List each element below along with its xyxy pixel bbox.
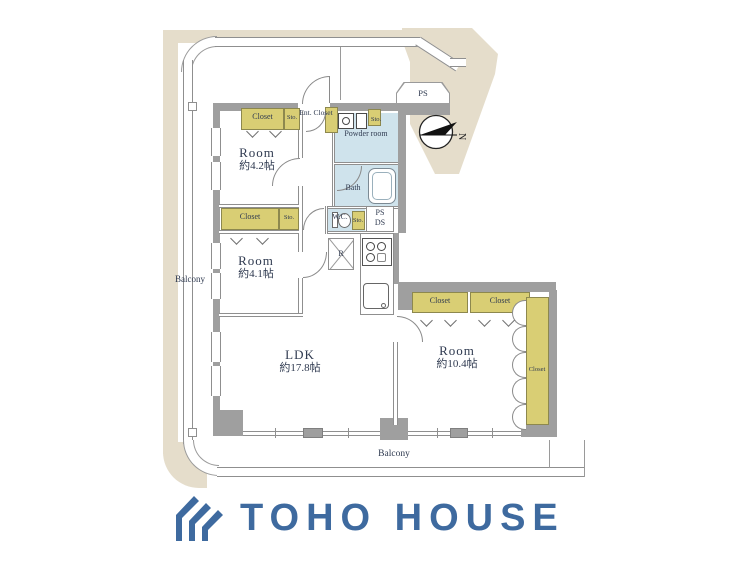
bathtub-inner: [372, 172, 392, 200]
wall-rightwing-east: [549, 290, 557, 437]
corridor-divider: [340, 47, 341, 103]
logo-mark-icon: [172, 493, 226, 543]
floor-plan: PS Closet Sto. Sto. Closet: [0, 0, 750, 563]
window: [211, 366, 221, 396]
burner: [366, 242, 375, 251]
ldk-partition: [393, 342, 398, 425]
ldk-size: 約17.8帖: [252, 362, 348, 374]
railing-top: [215, 37, 420, 47]
door-arc-entrance: [302, 76, 330, 104]
ldk-label: LDK 約17.8帖: [252, 348, 348, 374]
wc-label: W.C.: [328, 213, 352, 221]
wall-corner-bl: [213, 410, 243, 436]
sto-room41-label: Sto.: [278, 214, 300, 221]
toho-house-logo: TOHO HOUSE: [172, 486, 612, 550]
ds-label: DS: [375, 218, 385, 227]
balcony-bottom-label: Balcony: [370, 449, 418, 459]
closet-room42-label: Closet: [241, 113, 284, 122]
burner: [366, 253, 375, 262]
closet-room104-side-label: Closet: [523, 366, 551, 373]
balcony-partition-marker: [188, 102, 197, 111]
wall-rightwing-corner: [398, 292, 412, 310]
window-tick: [348, 428, 349, 438]
wall-rightwing-top: [398, 282, 556, 292]
hall-wall: [298, 278, 303, 315]
bath-label: Bath: [338, 184, 368, 193]
window-tick: [492, 428, 493, 438]
balcony-left-label: Balcony: [167, 275, 213, 285]
room104-size: 約10.4帖: [414, 358, 500, 370]
room42-label: Room 約4.2帖: [218, 146, 296, 172]
closet-room104-side: [526, 297, 549, 425]
backdrop-left: [163, 30, 178, 454]
compass-icon: N: [412, 106, 474, 158]
railing-bottom: [217, 467, 585, 477]
burner: [377, 253, 386, 262]
room-divider: [219, 313, 303, 317]
window-sash: [303, 428, 323, 438]
railing-end: [584, 440, 585, 477]
ldk-name: LDK: [252, 348, 348, 362]
room104-label: Room 約10.4帖: [414, 344, 500, 370]
sto-powder-label: Sto.: [364, 116, 388, 123]
logo-text: TOHO HOUSE: [240, 497, 565, 540]
north-label: N: [456, 133, 467, 140]
room104-name: Room: [414, 344, 500, 358]
window-tick: [437, 428, 438, 438]
wall-kitchen-east: [394, 233, 399, 284]
balcony-divider: [549, 437, 550, 468]
balcony-partition-marker: [188, 428, 197, 437]
washer-icon: [356, 113, 367, 129]
vanity-bowl: [342, 117, 350, 125]
room-divider: [219, 230, 299, 234]
railing-left: [183, 60, 193, 444]
room41-size: 約4.1帖: [216, 268, 296, 280]
powder-room-label: Powder room: [344, 130, 388, 139]
wall-east-upper: [398, 110, 406, 233]
ps-duct-label: PS: [397, 89, 449, 98]
window-tick: [275, 428, 276, 438]
room41-label: Room 約4.1帖: [216, 254, 296, 280]
closet-room104-a-label: Closet: [412, 297, 468, 306]
room42-name: Room: [218, 146, 296, 160]
stove-icon: [362, 238, 392, 266]
burner: [377, 242, 386, 251]
room41-name: Room: [216, 254, 296, 268]
window: [211, 332, 221, 362]
faucet-dot: [381, 303, 386, 308]
ent-closet-label: Ent. Closet: [299, 109, 333, 117]
room42-size: 約4.2帖: [218, 160, 296, 172]
window-sash: [450, 428, 468, 438]
ps-ds-label: PS DS: [366, 208, 394, 228]
ps-label: PS: [376, 208, 385, 217]
closet-room41-label: Closet: [221, 213, 279, 222]
door-leaf: [329, 76, 330, 103]
railing-stub: [450, 58, 466, 67]
refrigerator-label: R: [328, 250, 354, 259]
